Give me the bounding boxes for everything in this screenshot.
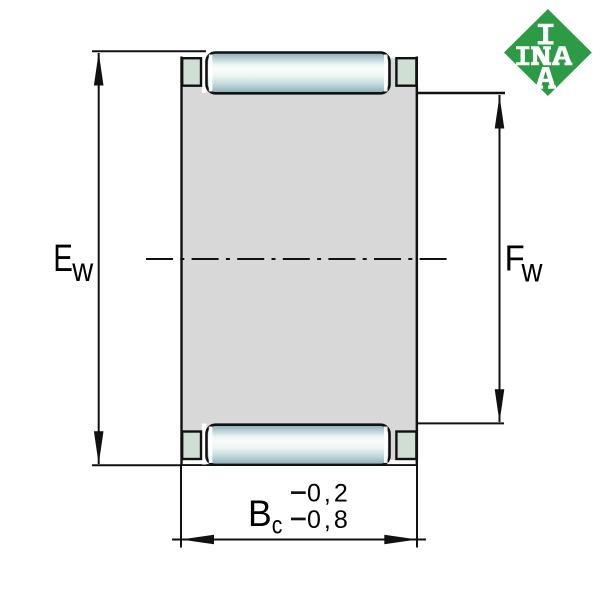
svg-text:c: c xyxy=(272,511,283,539)
svg-text:w: w xyxy=(71,251,93,288)
svg-text:w: w xyxy=(521,252,543,289)
svg-text:0,2: 0,2 xyxy=(307,480,351,508)
svg-text:0,8: 0,8 xyxy=(307,506,351,534)
svg-text:B: B xyxy=(248,492,272,534)
svg-text:E: E xyxy=(53,238,73,280)
